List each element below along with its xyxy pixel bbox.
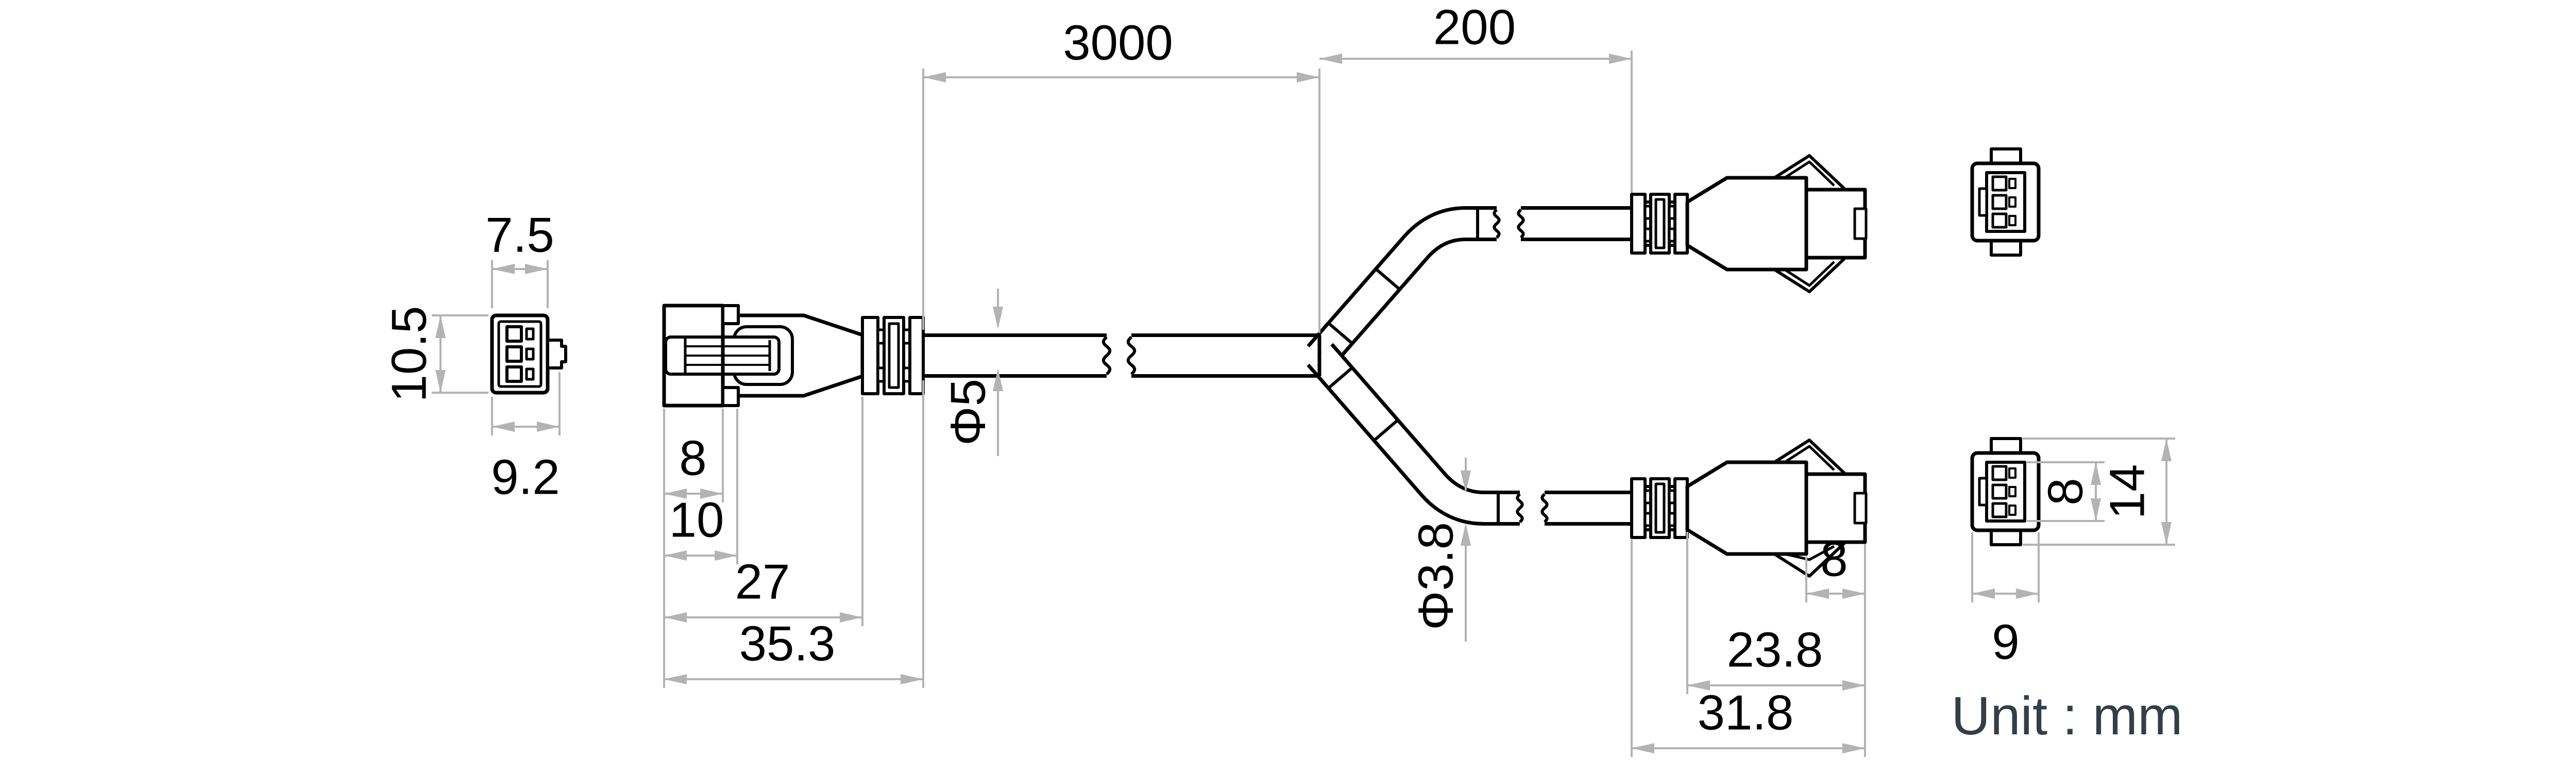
plug-b-upper-side-view [1632, 156, 1866, 292]
dim-label-front-right-inner-height: 8 [2038, 478, 2093, 505]
dim-label-main-cable-dia: Φ5 [941, 379, 996, 446]
front-left-pin-cavities [507, 327, 533, 381]
fr-upper-pin-cavities [1993, 177, 2015, 227]
dim-label-front-left-width-bottom: 9.2 [491, 450, 560, 505]
dim-label-plug-a-retainer: 10 [669, 493, 724, 548]
dim-label-plug-b-total: 31.8 [1698, 685, 1794, 741]
fr-upper-side-tab [1979, 189, 1987, 215]
dim-front-left-width-top: 7.5 [485, 208, 554, 308]
plug-a-cap-tab-top [723, 306, 738, 324]
dim-label-plug-a-total: 35.3 [739, 616, 836, 671]
plug-a-side-view [664, 306, 923, 406]
fr-upper-tab-bottom [1991, 241, 2021, 255]
front-left-latch-tab [548, 340, 566, 368]
cable-runs [923, 210, 1634, 522]
dim-label-branch-length: 200 [1433, 0, 1516, 55]
branch-lower-segment-1 [1320, 355, 1520, 508]
plug-b-lower-notch [1855, 493, 1866, 523]
dim-label-main-cable-length: 3000 [1063, 15, 1173, 71]
dim-front-left-height: 10.5 [382, 306, 488, 402]
fr-lower-tab-bottom [1991, 530, 2021, 545]
dim-front-right-width: 9 [1972, 532, 2039, 670]
fr-lower-tab-top [1991, 439, 2021, 453]
dim-plug-a-nose: 8 [664, 409, 723, 502]
plug-a-strain-relief [862, 317, 923, 394]
dim-label-plug-b-nose: 8 [1820, 532, 1848, 587]
dimension-annotations: 7.59.210.58102735.33000200823.831.89814Φ… [382, 0, 2175, 757]
dim-label-front-right-total-height: 14 [2100, 464, 2155, 519]
fr-lower-pin-cavities [1993, 466, 2015, 517]
fr-upper-tab-top [1991, 149, 2021, 163]
plug-b-upper-strain-relief [1632, 194, 1687, 253]
dim-label-front-right-width: 9 [1992, 615, 2019, 670]
cable-assembly-drawing: 7.59.210.58102735.33000200823.831.89814Φ… [0, 0, 2576, 773]
dim-label-plug-a-nose: 8 [679, 431, 706, 486]
dim-label-plug-a-body: 27 [735, 554, 790, 610]
front-view-left-connector [492, 315, 566, 393]
plug-b-upper-notch [1855, 209, 1866, 239]
plug-b-upper-body [1687, 178, 1806, 270]
fr-lower-side-tab [1979, 478, 1987, 505]
dim-label-front-left-width-top: 7.5 [485, 208, 554, 263]
front-view-right-lower-connector [1972, 439, 2039, 545]
dim-main-cable-length: 3000 [923, 15, 1319, 333]
dim-label-front-left-height: 10.5 [382, 306, 437, 402]
dim-label-branch-cable-dia: Φ3.8 [1409, 522, 1464, 630]
dim-branch-length: 200 [1319, 0, 1632, 193]
unit-label: Unit : mm [1951, 686, 2182, 746]
dim-label-plug-b-body: 23.8 [1727, 623, 1823, 678]
plug-a-cap-tab-bottom [723, 388, 738, 406]
front-view-right-upper-connector [1972, 149, 2039, 255]
plug-b-lower-body [1687, 462, 1806, 554]
plug-b-lower-strain-relief [1632, 479, 1687, 537]
